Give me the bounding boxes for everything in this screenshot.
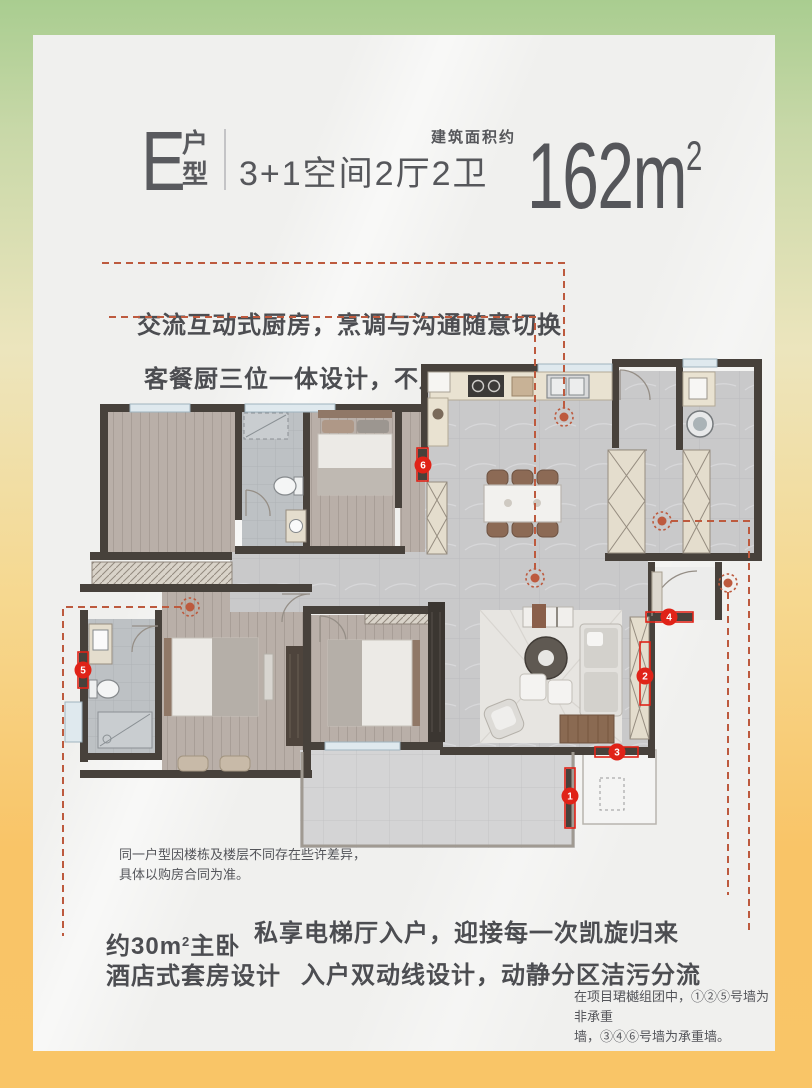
balcony-floor bbox=[300, 750, 575, 848]
laundry-fixtures bbox=[683, 372, 715, 437]
cutting-board-icon bbox=[512, 377, 533, 396]
marker-2: 2 bbox=[642, 672, 648, 683]
wall-note: 在项目珺樾组团中，①②⑤号墙为非承重 墙，③④⑥号墙为承重墙。 bbox=[574, 987, 775, 1047]
corridor-floor bbox=[230, 552, 425, 612]
entry-callout-line1: 私享电梯厅入户，迎接每一次凯旋归来 bbox=[254, 913, 679, 948]
area-value: 162m2 bbox=[527, 109, 702, 223]
unit-type-label: 户 型 bbox=[182, 128, 208, 190]
plan-disclaimer-line2: 具体以购房合同为准。 bbox=[119, 865, 366, 885]
unit-type-char-top: 户 bbox=[182, 128, 208, 159]
area-number: 162m bbox=[527, 123, 686, 228]
fridge-icon bbox=[428, 372, 450, 392]
entry-hall-floor bbox=[618, 371, 676, 450]
wall-note-line1: 在项目珺樾组团中，①②⑤号墙为非承重 bbox=[574, 987, 775, 1027]
marker-6: 6 bbox=[420, 461, 426, 472]
shoe-cabinet-icon bbox=[652, 572, 662, 612]
ac-platform bbox=[583, 750, 656, 824]
stove-icon bbox=[468, 375, 504, 397]
floorplan-drawing: 1 2 3 4 5 6 bbox=[60, 358, 762, 858]
entry-callout-line2: 入户双动线设计，动静分区洁污分流 bbox=[301, 955, 701, 990]
rice-cooker-icon bbox=[433, 409, 444, 420]
layout-spec: 3+1空间2厅2卫 bbox=[239, 146, 489, 195]
toilet-icon bbox=[97, 680, 119, 698]
tv-wall-icon bbox=[428, 602, 445, 742]
dining-set bbox=[484, 470, 561, 537]
marker-5: 5 bbox=[80, 666, 86, 677]
area-label: 建筑面积约 bbox=[431, 126, 516, 147]
wardrobe-icon bbox=[286, 646, 303, 746]
sink-icon bbox=[290, 520, 303, 533]
lounge-chair-icon bbox=[220, 756, 250, 771]
marker-1: 1 bbox=[567, 792, 573, 803]
console-table-icon bbox=[523, 607, 573, 627]
master-callout-line2: 酒店式套房设计 bbox=[106, 956, 281, 991]
unit-type-char-bottom: 型 bbox=[182, 159, 208, 190]
dining-table-icon bbox=[484, 485, 561, 522]
throw-cloth bbox=[532, 604, 546, 628]
unit-letter: E bbox=[141, 119, 186, 203]
toilet-icon bbox=[274, 477, 296, 495]
wall-note-line2: 墙，③④⑥号墙为承重墙。 bbox=[574, 1027, 775, 1047]
vanity-sink-icon bbox=[93, 630, 108, 650]
flex-room-floor bbox=[108, 412, 235, 552]
kitchen-callout-line1: 交流互动式厨房，烹调与沟通随意切换 bbox=[137, 305, 562, 340]
area-superscript: 2 bbox=[686, 132, 702, 179]
header-divider bbox=[224, 129, 226, 190]
poster-page: E 户 型 3+1空间2厅2卫 建筑面积约 162m2 交流互动式厨房，烹调与沟… bbox=[0, 0, 812, 1088]
master-closet bbox=[92, 562, 232, 586]
marker-4: 4 bbox=[666, 613, 672, 624]
lounge-chair-icon bbox=[178, 756, 208, 771]
marker-3: 3 bbox=[614, 748, 620, 759]
